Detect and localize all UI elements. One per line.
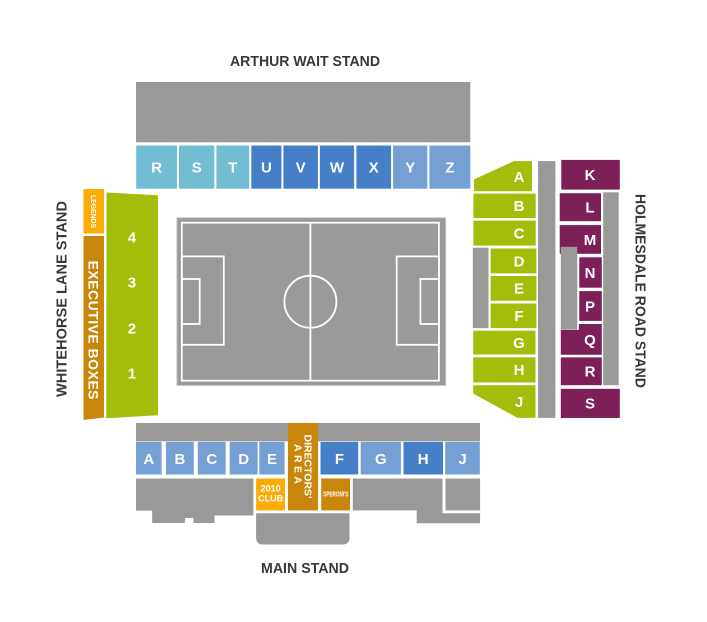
svg-text:K: K: [585, 167, 596, 184]
svg-text:J: J: [458, 451, 466, 468]
svg-text:SPERONI'S: SPERONI'S: [323, 491, 348, 498]
svg-text:D: D: [514, 253, 525, 270]
svg-text:3: 3: [128, 275, 136, 292]
svg-text:1: 1: [128, 365, 136, 382]
svg-text:MAIN STAND: MAIN STAND: [261, 560, 349, 577]
svg-text:E: E: [514, 281, 524, 298]
svg-text:T: T: [228, 159, 237, 176]
svg-text:2010: 2010: [261, 483, 281, 493]
svg-text:G: G: [513, 335, 525, 352]
svg-text:S: S: [585, 396, 595, 413]
svg-text:H: H: [514, 362, 525, 379]
svg-text:CLUB: CLUB: [258, 493, 283, 503]
svg-text:B: B: [174, 451, 185, 468]
svg-text:M: M: [584, 232, 597, 249]
svg-text:A: A: [143, 451, 154, 468]
svg-text:2: 2: [128, 320, 136, 337]
svg-text:ARTHUR WAIT STAND: ARTHUR WAIT STAND: [230, 53, 380, 70]
svg-text:X: X: [369, 159, 379, 176]
svg-text:HOLMESDALE ROAD STAND: HOLMESDALE ROAD STAND: [631, 194, 648, 388]
svg-text:Y: Y: [405, 159, 415, 176]
svg-text:F: F: [335, 451, 344, 468]
svg-text:H: H: [418, 451, 429, 468]
svg-text:A: A: [514, 169, 525, 186]
svg-text:W: W: [330, 159, 345, 176]
svg-text:E: E: [267, 451, 277, 468]
svg-text:WHITEHORSE LANE STAND: WHITEHORSE LANE STAND: [54, 201, 71, 397]
svg-text:L: L: [585, 200, 594, 217]
svg-text:F: F: [514, 308, 523, 325]
svg-text:Q: Q: [584, 332, 596, 349]
svg-text:J: J: [515, 394, 523, 411]
svg-text:C: C: [514, 225, 525, 242]
svg-text:LEGENDS: LEGENDS: [89, 195, 98, 228]
svg-text:P: P: [585, 298, 595, 315]
svg-text:B: B: [514, 198, 525, 215]
svg-text:V: V: [296, 159, 306, 176]
svg-text:C: C: [206, 451, 217, 468]
svg-text:R: R: [151, 159, 162, 176]
svg-text:S: S: [192, 159, 202, 176]
svg-text:G: G: [375, 451, 387, 468]
svg-text:U: U: [261, 159, 272, 176]
svg-text:4: 4: [128, 229, 137, 246]
svg-text:Z: Z: [445, 159, 454, 176]
svg-text:N: N: [585, 265, 596, 282]
svg-text:EXECUTIVE BOXES: EXECUTIVE BOXES: [86, 261, 102, 400]
svg-text:R: R: [585, 364, 596, 381]
svg-text:D: D: [238, 451, 249, 468]
